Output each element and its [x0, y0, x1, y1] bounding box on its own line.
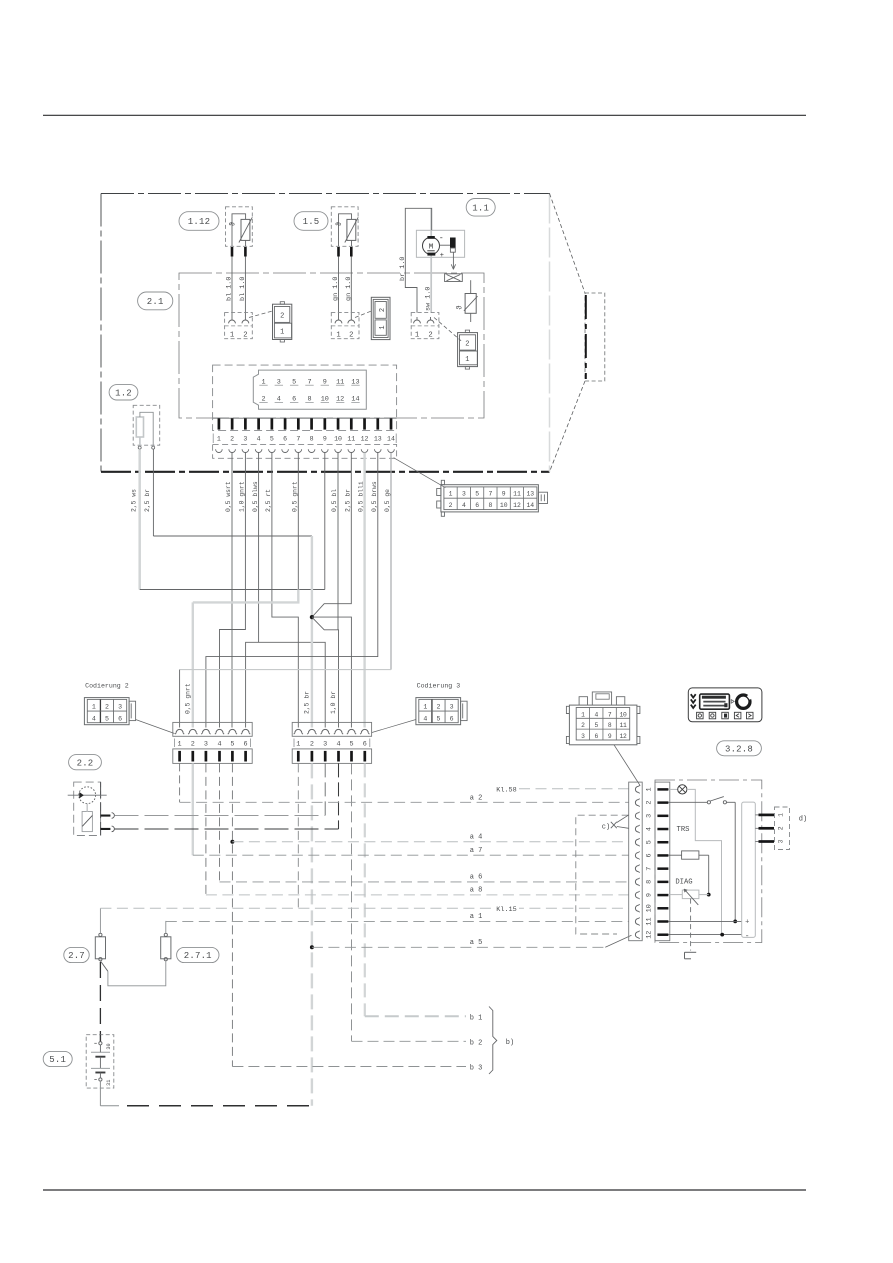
svg-text:-: - [439, 234, 444, 243]
svg-text:bl 1.0: bl 1.0 [226, 277, 234, 301]
svg-text:gn 1.0: gn 1.0 [332, 277, 340, 301]
svg-text:13: 13 [374, 436, 382, 443]
svg-text:1.12: 1.12 [188, 217, 210, 227]
svg-text:11: 11 [513, 490, 521, 497]
svg-text:11: 11 [646, 917, 654, 925]
svg-text:3.2.8: 3.2.8 [725, 745, 753, 755]
svg-text:6: 6 [450, 715, 454, 722]
svg-text:b): b) [506, 1039, 514, 1047]
svg-text:1: 1 [581, 711, 585, 718]
svg-text:1: 1 [336, 332, 340, 340]
svg-text:1: 1 [230, 332, 234, 340]
svg-text:ϑ: ϑ [336, 222, 344, 226]
svg-text:9: 9 [323, 436, 327, 443]
svg-text:5: 5 [595, 722, 599, 729]
svg-text:Kl.58: Kl.58 [496, 787, 516, 795]
svg-text:8: 8 [310, 436, 314, 443]
svg-text:0,5 gnrt: 0,5 gnrt [184, 683, 191, 714]
svg-text:4: 4 [217, 741, 221, 749]
svg-text:-: - [745, 932, 750, 941]
svg-text:1,0 br: 1,0 br [330, 691, 337, 714]
svg-text:7: 7 [608, 711, 612, 718]
svg-text:2: 2 [437, 704, 441, 711]
svg-text:10: 10 [646, 904, 654, 912]
svg-text:10: 10 [334, 436, 342, 443]
svg-text:3: 3 [646, 814, 654, 818]
svg-text:11: 11 [347, 436, 355, 443]
svg-text:bl 1.0: bl 1.0 [239, 277, 247, 301]
svg-text:1: 1 [415, 332, 419, 340]
svg-text:5: 5 [270, 436, 274, 443]
svg-text:5: 5 [437, 715, 441, 722]
svg-text:0,5 blws: 0,5 blws [252, 481, 259, 512]
svg-text:3: 3 [462, 490, 466, 497]
svg-text:2: 2 [465, 340, 469, 348]
svg-text:1: 1 [92, 704, 96, 711]
svg-text:7: 7 [489, 490, 493, 497]
svg-text:14: 14 [526, 502, 534, 509]
svg-text:14: 14 [387, 436, 395, 443]
svg-text:8: 8 [646, 880, 654, 884]
svg-text:6: 6 [475, 502, 479, 509]
svg-text:4: 4 [92, 715, 96, 722]
svg-text:4: 4 [423, 715, 427, 722]
svg-text:3: 3 [118, 704, 122, 711]
svg-text:4: 4 [336, 741, 340, 749]
svg-text:4: 4 [646, 827, 654, 831]
svg-text:2.1: 2.1 [147, 297, 164, 307]
svg-text:a 1: a 1 [470, 913, 483, 921]
svg-text:1: 1 [217, 436, 221, 443]
svg-text:8: 8 [489, 502, 493, 509]
svg-text:1: 1 [379, 325, 387, 329]
svg-text:1: 1 [280, 329, 284, 337]
svg-text:2.2: 2.2 [77, 758, 94, 768]
svg-text:5: 5 [230, 741, 234, 749]
svg-text:9: 9 [608, 733, 612, 740]
svg-text:Codierung 2: Codierung 2 [85, 683, 129, 690]
svg-text:5.1: 5.1 [49, 1055, 66, 1065]
svg-text:c): c) [602, 823, 610, 831]
svg-text:1: 1 [449, 490, 453, 497]
svg-text:2: 2 [230, 436, 234, 443]
svg-text:+: + [440, 252, 444, 260]
svg-text:7: 7 [296, 436, 300, 443]
svg-text:9: 9 [646, 893, 654, 897]
svg-text:br 1.0: br 1.0 [399, 257, 407, 281]
svg-text:3: 3 [323, 741, 327, 749]
svg-text:d): d) [799, 816, 807, 824]
svg-text:a 8: a 8 [470, 887, 483, 895]
svg-text:2,5 br: 2,5 br [144, 489, 151, 512]
svg-text:0,5 bl: 0,5 bl [331, 489, 338, 512]
svg-text:12: 12 [513, 502, 521, 509]
svg-text:1: 1 [646, 787, 654, 791]
svg-text:1.5: 1.5 [303, 217, 320, 227]
svg-text:gn 1.0: gn 1.0 [345, 277, 353, 301]
svg-text:0,5 brws: 0,5 brws [371, 481, 378, 512]
svg-text:0,5 gnrt: 0,5 gnrt [292, 481, 299, 512]
svg-text:9: 9 [502, 490, 506, 497]
svg-text:3: 3 [204, 741, 208, 749]
svg-text:7: 7 [646, 867, 654, 871]
svg-text:6: 6 [283, 436, 287, 443]
svg-text:2: 2 [428, 332, 432, 340]
svg-text:2: 2 [105, 704, 109, 711]
svg-text:2: 2 [777, 826, 784, 830]
svg-text:3: 3 [243, 436, 247, 443]
svg-text:b 3: b 3 [470, 1065, 483, 1073]
svg-text:6: 6 [118, 715, 122, 722]
svg-text:2,5 br: 2,5 br [303, 691, 310, 714]
svg-text:5: 5 [646, 840, 654, 844]
svg-text:a 6: a 6 [470, 874, 483, 882]
svg-text:10: 10 [620, 711, 627, 718]
svg-text:0,5 ge: 0,5 ge [384, 489, 391, 512]
svg-text:30: 30 [106, 1043, 112, 1049]
svg-text:1: 1 [777, 813, 784, 817]
svg-text:6: 6 [363, 741, 367, 749]
svg-text:2: 2 [191, 741, 195, 749]
svg-text:12: 12 [361, 436, 369, 443]
svg-text:a 7: a 7 [470, 847, 483, 855]
svg-text:a 5: a 5 [470, 939, 483, 947]
svg-text:6: 6 [595, 733, 599, 740]
svg-text:2: 2 [243, 332, 247, 340]
svg-text:0,5 wsrt: 0,5 wsrt [225, 481, 232, 512]
svg-text:2: 2 [449, 502, 453, 509]
svg-text:6: 6 [244, 741, 248, 749]
svg-text:ϑ: ϑ [230, 222, 238, 226]
svg-text:5: 5 [105, 715, 109, 722]
svg-text:1.2: 1.2 [115, 389, 132, 399]
svg-text:TRS: TRS [677, 826, 690, 834]
svg-text:12: 12 [620, 733, 627, 740]
svg-text:a 4: a 4 [470, 833, 483, 841]
svg-text:4: 4 [462, 502, 466, 509]
svg-text:2,5 ws: 2,5 ws [130, 489, 137, 512]
svg-text:1.1: 1.1 [472, 204, 489, 214]
svg-text:12: 12 [646, 931, 654, 939]
svg-text:2.7.1: 2.7.1 [184, 951, 212, 961]
svg-text:1: 1 [423, 704, 427, 711]
svg-text:8: 8 [608, 722, 612, 729]
svg-text:3: 3 [581, 733, 585, 740]
svg-text:5: 5 [475, 490, 479, 497]
svg-text:1,0 gnrt: 1,0 gnrt [239, 481, 246, 512]
svg-text:2: 2 [310, 741, 314, 749]
svg-text:sw 1.0: sw 1.0 [425, 287, 433, 311]
svg-text:b 2: b 2 [470, 1039, 483, 1047]
svg-text:2: 2 [349, 332, 353, 340]
svg-text:Kl.15: Kl.15 [496, 906, 516, 914]
svg-text:+: + [745, 919, 749, 927]
svg-text:2: 2 [581, 722, 585, 729]
svg-text:4: 4 [257, 436, 261, 443]
svg-text:2,5 br: 2,5 br [345, 489, 352, 512]
svg-text:2: 2 [379, 308, 387, 312]
svg-text:2,5 rt: 2,5 rt [265, 489, 272, 512]
svg-text:ϑ: ϑ [457, 305, 465, 309]
svg-text:1: 1 [296, 741, 300, 749]
svg-text:a 2: a 2 [470, 794, 483, 802]
svg-text:1: 1 [465, 356, 469, 364]
svg-text:4: 4 [595, 711, 599, 718]
svg-text:3: 3 [450, 704, 454, 711]
svg-text:DIAG: DIAG [675, 879, 692, 887]
svg-text:2.7: 2.7 [68, 951, 85, 961]
svg-text:2: 2 [646, 801, 654, 805]
svg-text:Codierung 3: Codierung 3 [417, 683, 461, 690]
svg-text:1: 1 [178, 741, 182, 749]
svg-text:5: 5 [349, 741, 353, 749]
svg-text:b 1: b 1 [470, 1014, 483, 1022]
svg-text:31: 31 [106, 1080, 112, 1086]
svg-text:13: 13 [526, 490, 534, 497]
svg-text:6: 6 [646, 853, 654, 857]
svg-text:11: 11 [620, 722, 627, 729]
svg-text:2: 2 [280, 312, 284, 320]
svg-text:3: 3 [777, 839, 784, 843]
svg-text:10: 10 [500, 502, 508, 509]
